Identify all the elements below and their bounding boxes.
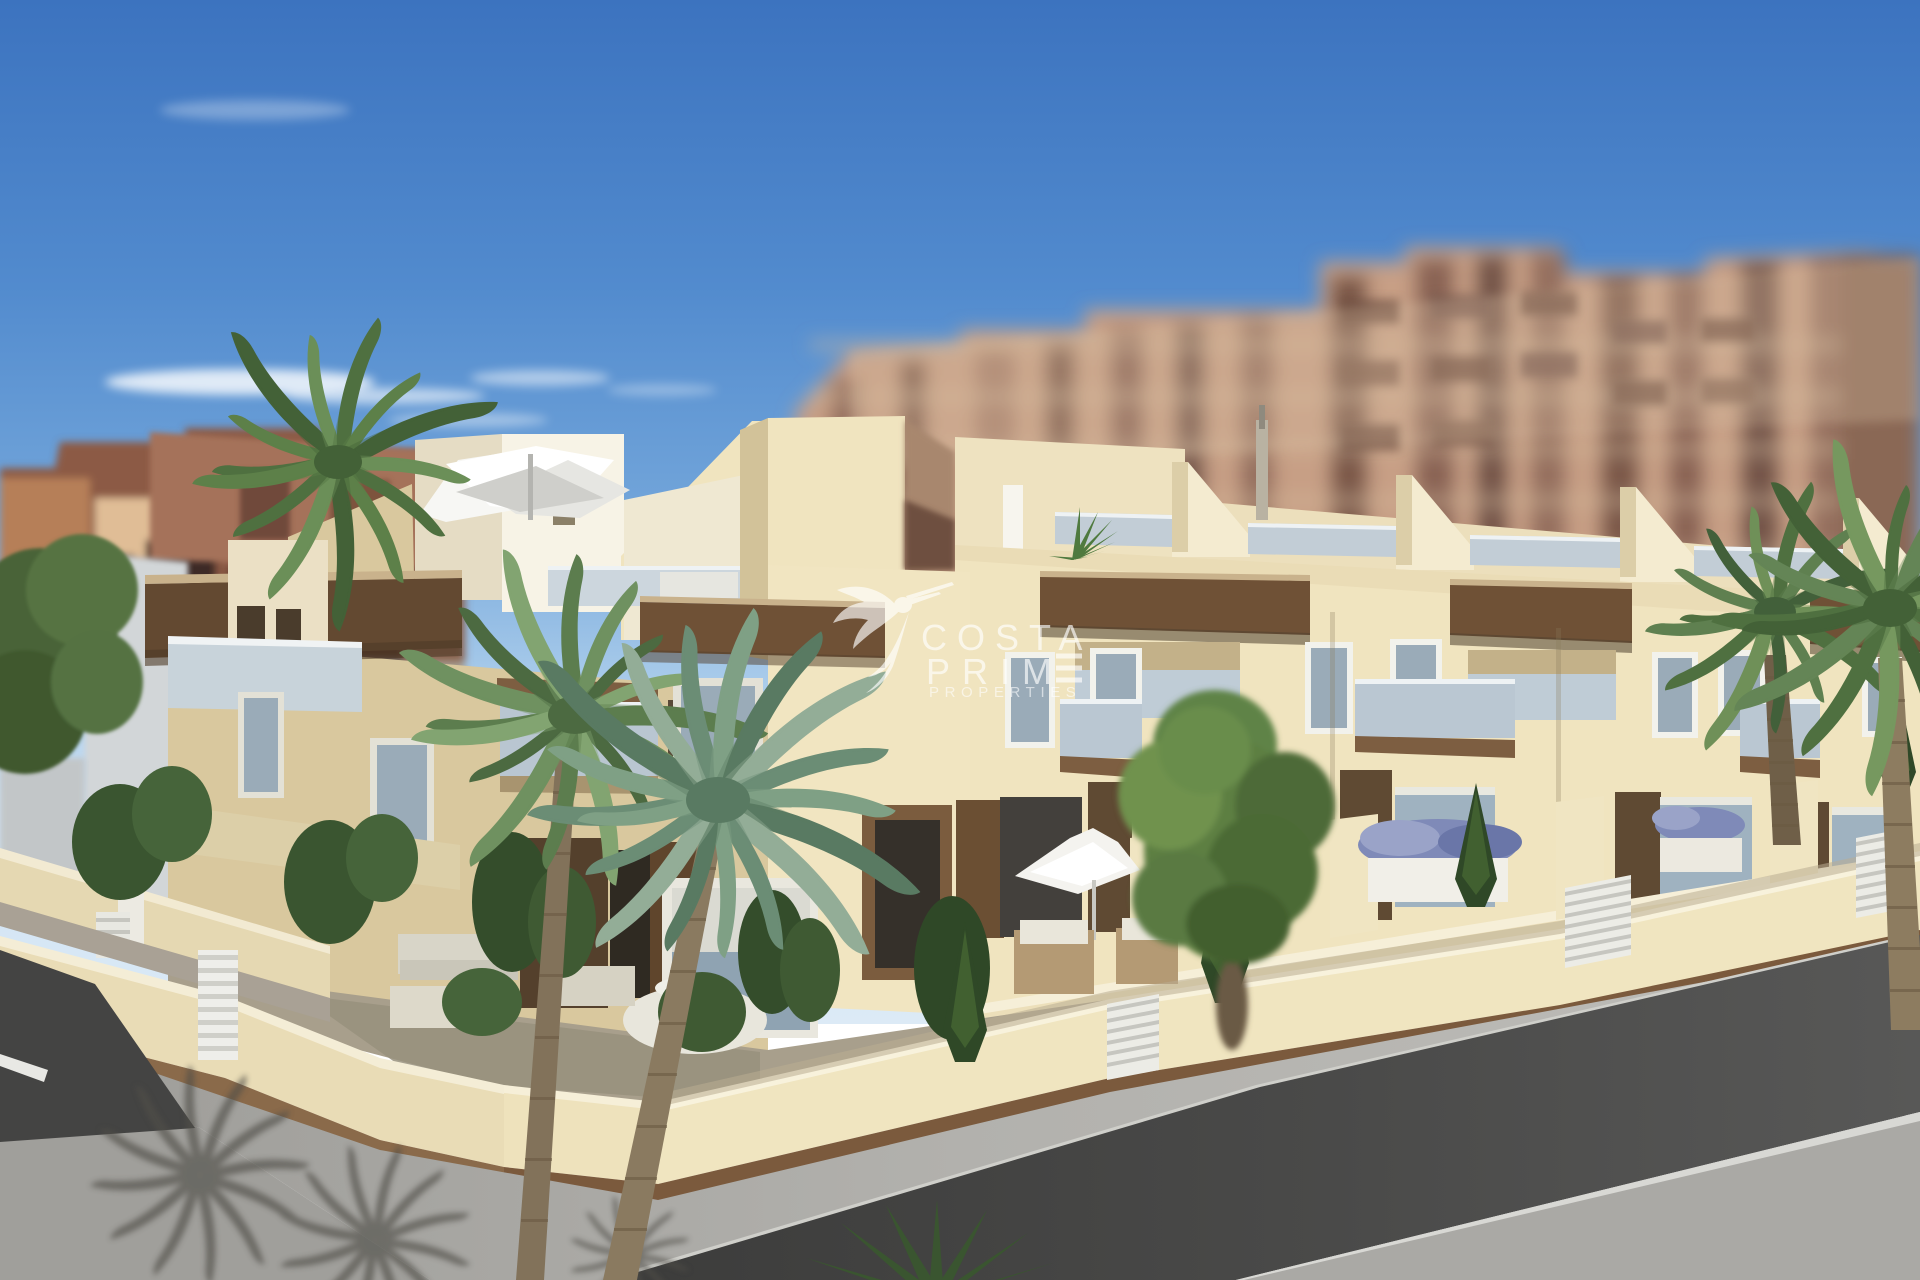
svg-text:PROPERTIES: PROPERTIES — [929, 684, 1081, 701]
